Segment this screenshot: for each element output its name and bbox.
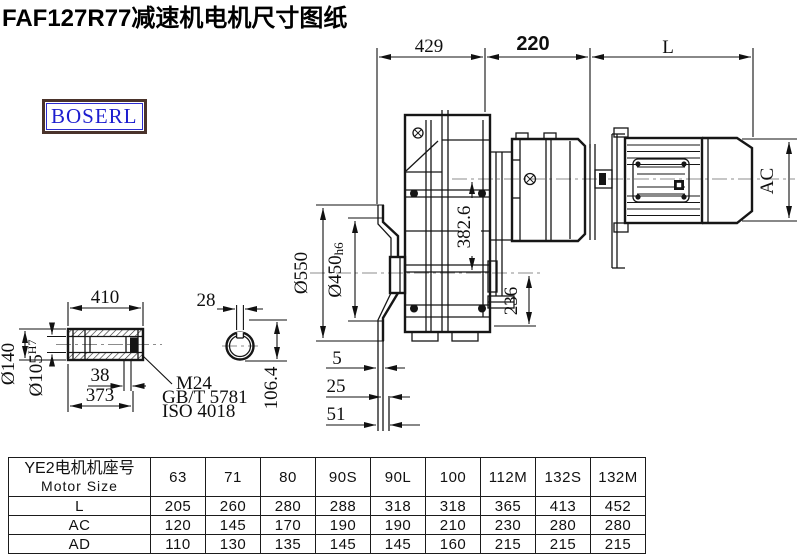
dim-382-6: 382.6: [454, 182, 481, 270]
col-header: 80: [261, 458, 316, 497]
col-header: 90S: [316, 458, 371, 497]
table-cell: 170: [261, 516, 316, 535]
table-cell: 215: [536, 535, 591, 554]
dim-373-label: 373: [86, 385, 115, 406]
dim-51-label: 51: [327, 404, 346, 425]
table-cell: 190: [316, 516, 371, 535]
dim-106-4: 106.4: [245, 320, 287, 409]
col-header: 112M: [481, 458, 536, 497]
table-cell: 280: [591, 516, 646, 535]
table-header-en: Motor Size: [9, 478, 150, 495]
dim-140-label: Ø140: [0, 343, 19, 385]
table-cell: 260: [206, 497, 261, 516]
dim-38-label: 38: [91, 365, 110, 386]
dim-450h6-label: Ø450h6: [325, 242, 346, 298]
table-cell: 288: [316, 497, 371, 516]
row-label: AC: [9, 516, 151, 535]
table-cell: 135: [261, 535, 316, 554]
dim-L-label: L: [662, 37, 674, 58]
table-cell: 130: [206, 535, 261, 554]
dim-foot-5: 5: [326, 348, 405, 369]
dim-236: 236: [494, 276, 536, 326]
table-cell: 120: [151, 516, 206, 535]
col-header: 132S: [536, 458, 591, 497]
col-header: 132M: [591, 458, 646, 497]
row-label: AD: [9, 535, 151, 554]
table-cell: 160: [426, 535, 481, 554]
dim-450h6: Ø450h6: [325, 218, 384, 321]
dim-382-6-label: 382.6: [454, 206, 475, 249]
table-cell: 280: [536, 516, 591, 535]
dim-5-label: 5: [332, 348, 342, 369]
table-row-L: L 205 260 280 288 318 318 365 413 452: [9, 497, 646, 516]
col-header: 71: [206, 458, 261, 497]
table-cell: 318: [426, 497, 481, 516]
table-cell: 365: [481, 497, 536, 516]
table-cell: 110: [151, 535, 206, 554]
dim-410-label: 410: [91, 287, 120, 308]
dim-AC-label: AC: [757, 168, 778, 194]
dim-220-label: 220: [516, 33, 549, 55]
gearbox-housing: [405, 110, 497, 341]
table-cell: 145: [316, 535, 371, 554]
col-header: 90L: [371, 458, 426, 497]
table-cell: 230: [481, 516, 536, 535]
table-header-cn: YE2电机机座号: [9, 460, 150, 478]
dim-410: 410: [68, 287, 143, 326]
table-row-AD: AD 110 130 135 145 145 160 215 215 215: [9, 535, 646, 554]
dim-105H7-label: Ø105H7: [25, 340, 47, 397]
leader-iso-label: ISO 4018: [162, 401, 235, 422]
dim-foot-51: 51: [326, 404, 420, 425]
table-cell: 145: [371, 535, 426, 554]
motor-side-view: [590, 128, 752, 268]
drawing-sheet: FAF127R77减速机电机尺寸图纸 BOSERL: [0, 0, 800, 557]
dim-106-4-label: 106.4: [261, 366, 282, 409]
table-cell: 210: [426, 516, 481, 535]
table-header-motor-size: YE2电机机座号 Motor Size: [9, 458, 151, 497]
bolt-spec-leader: M24 GB/T 5781 ISO 4018: [142, 355, 248, 422]
dim-550-label: Ø550: [291, 252, 312, 294]
table-cell: 145: [206, 516, 261, 535]
fan-cowl: [702, 138, 752, 223]
table-cell: 452: [591, 497, 646, 516]
table-cell: 280: [261, 497, 316, 516]
dim-28-label: 28: [197, 290, 216, 311]
table-cell: 215: [481, 535, 536, 554]
table-cell: 205: [151, 497, 206, 516]
table-cell: 318: [371, 497, 426, 516]
dim-AC: AC: [742, 139, 797, 221]
dim-25-label: 25: [327, 376, 346, 397]
table-cell: 215: [591, 535, 646, 554]
table-cell: 413: [536, 497, 591, 516]
dim-28: 28: [197, 290, 264, 330]
col-header: 63: [151, 458, 206, 497]
dim-220: 220: [487, 33, 590, 148]
motor-size-table: YE2电机机座号 Motor Size 63 71 80 90S 90L 100…: [8, 457, 646, 554]
dim-foot-25: 25: [326, 376, 410, 397]
eyebolt-icon: [413, 128, 423, 138]
row-label: L: [9, 497, 151, 516]
table-cell: 190: [371, 516, 426, 535]
col-header: 100: [426, 458, 481, 497]
table-row-AC: AC 120 145 170 190 190 210 230 280 280: [9, 516, 646, 535]
dim-429-label: 429: [415, 36, 444, 57]
dim-L: L: [592, 37, 753, 137]
dim-236-label: 236: [501, 287, 522, 316]
bell-housing: [488, 133, 585, 308]
